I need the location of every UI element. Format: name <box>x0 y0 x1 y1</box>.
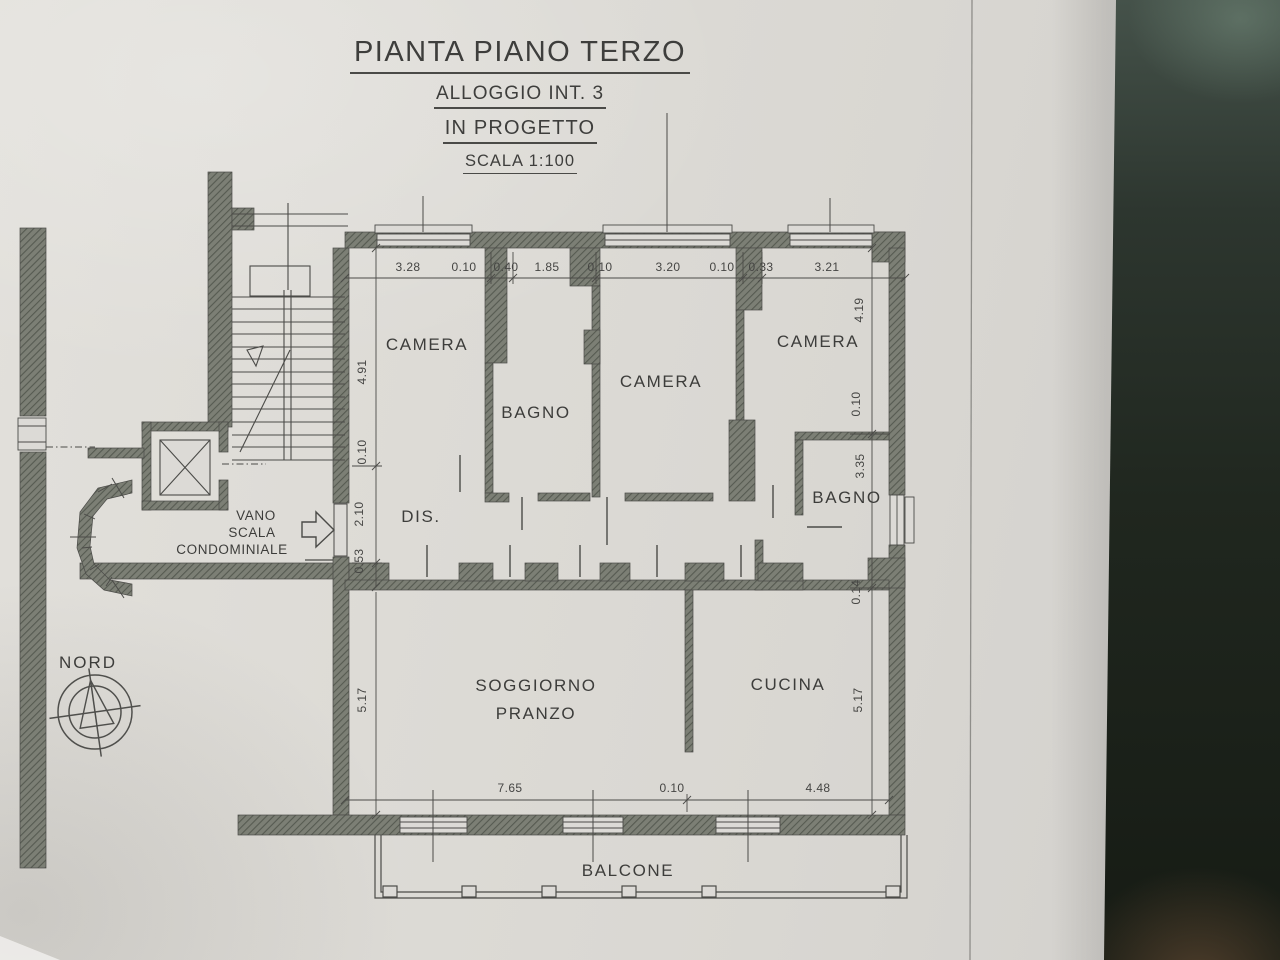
dim-label: 0.10 <box>452 260 477 274</box>
room-label-bagno-left: BAGNO <box>501 403 570 422</box>
stair-direction-arrow <box>247 346 263 366</box>
dim-label: 0.10 <box>660 781 685 795</box>
dim-label: 4.91 <box>355 360 369 385</box>
room-label-disimpegno: DIS. <box>401 507 440 526</box>
corridor-pillar-wall <box>345 563 803 590</box>
dim-label: 0.40 <box>494 260 519 274</box>
room-label-soggiorno-line1: SOGGIORNO <box>475 676 596 695</box>
right-exterior-wall-upper <box>889 248 905 495</box>
dim-label: 0.33 <box>749 260 774 274</box>
balcony-railing <box>375 790 907 898</box>
entrance-arrow-icon <box>302 512 334 547</box>
sheet-frame-line <box>970 0 972 960</box>
room-label-soggiorno-line2: PRANZO <box>496 704 576 723</box>
dim-label: 5.17 <box>355 688 369 713</box>
dim-label: 0.10 <box>588 260 613 274</box>
dim-label: 3.35 <box>853 454 867 479</box>
stairwell-label-line2: SCALA <box>228 525 275 540</box>
dim-label: 0.53 <box>352 549 366 574</box>
dim-label: 7.65 <box>498 781 523 795</box>
dim-label: 3.21 <box>815 260 840 274</box>
stairs <box>232 203 348 460</box>
left-exterior-wall-upper <box>333 248 349 503</box>
room-label-bagno-right: BAGNO <box>812 488 881 507</box>
stair-direction-line <box>240 350 290 452</box>
room-label-balcone: BALCONE <box>582 861 674 880</box>
dim-label: 4.19 <box>852 298 866 323</box>
dim-label: 0.14 <box>849 580 863 605</box>
kitchen-divider-wall <box>685 590 693 752</box>
room-label-camera-left: CAMERA <box>386 335 468 354</box>
dim-label: 0.10 <box>710 260 735 274</box>
dim-label: 0.10 <box>355 440 369 465</box>
dim-label: 0.10 <box>849 392 863 417</box>
floor-plan-drawing: 3.28 0.10 0.40 1.85 0.10 3.20 0.10 0.33 … <box>0 0 1280 960</box>
dimension-lines <box>341 244 909 819</box>
photo-of-floor-plan: PIANTA PIANO TERZO ALLOGGIO INT. 3 IN PR… <box>0 0 1280 960</box>
elevator-icon <box>160 440 266 495</box>
bagno-right-top-wall <box>795 432 889 440</box>
north-compass-icon: NORD <box>43 653 146 763</box>
entrance-door-leaf <box>334 504 347 556</box>
dim-label: 3.28 <box>396 260 421 274</box>
windows <box>18 225 914 833</box>
paper-corner <box>0 936 60 960</box>
room-label-camera-center: CAMERA <box>620 372 702 391</box>
room-label-cucina: CUCINA <box>751 675 826 694</box>
dim-label: 4.48 <box>806 781 831 795</box>
north-label: NORD <box>59 653 117 672</box>
dim-label: 1.85 <box>535 260 560 274</box>
dim-label: 5.17 <box>851 688 865 713</box>
stairwell-label-line1: VANO <box>236 508 276 523</box>
room-labels: CAMERA BAGNO CAMERA CAMERA BAGNO DIS. SO… <box>176 332 881 880</box>
room-label-camera-right: CAMERA <box>777 332 859 351</box>
dim-label: 3.20 <box>656 260 681 274</box>
landing-bottom-wall <box>80 563 335 579</box>
entrance <box>302 504 347 560</box>
left-exterior-wall-lower <box>333 557 349 815</box>
dim-label: 2.10 <box>352 502 366 527</box>
walls <box>20 172 905 868</box>
stairwell-left-wall <box>208 172 232 427</box>
stairwell-label-line3: CONDOMINIALE <box>176 542 287 557</box>
